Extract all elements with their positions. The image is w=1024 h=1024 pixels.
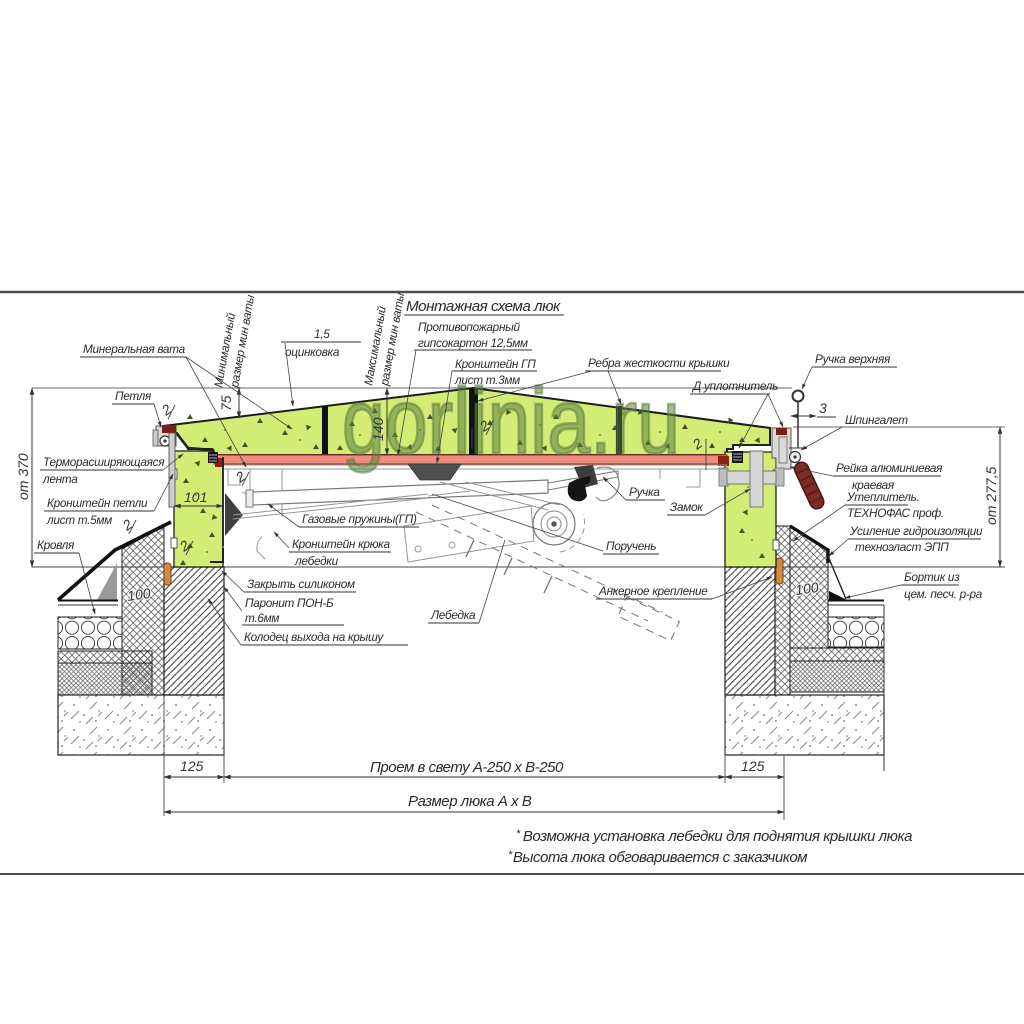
svg-text:цем. песч. р-ра: цем. песч. р-ра bbox=[904, 587, 983, 601]
svg-text:Шпингалет: Шпингалет bbox=[845, 413, 908, 427]
svg-text:100: 100 bbox=[794, 579, 820, 598]
svg-text:Кронштейн крюка: Кронштейн крюка bbox=[292, 537, 390, 551]
svg-text:Монтажная схема люк: Монтажная схема люк bbox=[406, 298, 561, 315]
svg-text:лебедки: лебедки bbox=[294, 554, 339, 568]
svg-text:Паронит ПОН-Б: Паронит ПОН-Б bbox=[245, 596, 334, 610]
svg-text:Ручка верхняя: Ручка верхняя bbox=[815, 352, 891, 366]
svg-text:Ребра жесткости крышки: Ребра жесткости крышки bbox=[588, 356, 730, 370]
svg-text:Закрыть силиконом: Закрыть силиконом bbox=[247, 577, 355, 591]
svg-text:1,5: 1,5 bbox=[314, 327, 330, 341]
svg-text:гипсокартон 12,5мм: гипсокартон 12,5мм bbox=[418, 336, 528, 350]
svg-text:от 370: от 370 bbox=[15, 453, 31, 500]
svg-text:*Возможна установка лебедки дл: *Возможна установка лебедки для поднятия… bbox=[516, 828, 912, 845]
svg-text:125: 125 bbox=[741, 758, 765, 774]
svg-text:Рейка алюминиевая: Рейка алюминиевая bbox=[836, 461, 943, 475]
svg-text:ТЕХНОФАС проф.: ТЕХНОФАС проф. bbox=[847, 506, 944, 520]
svg-text:Д уплотнитель: Д уплотнитель bbox=[691, 379, 778, 393]
svg-text:101: 101 bbox=[184, 489, 207, 505]
svg-text:техноэласт ЭПП: техноэласт ЭПП bbox=[855, 540, 949, 554]
svg-text:лента: лента bbox=[42, 472, 78, 486]
svg-text:Утеплитель.: Утеплитель. bbox=[846, 490, 919, 504]
svg-text:Анкерное крепление: Анкерное крепление bbox=[598, 584, 708, 598]
svg-text:лист т.3мм: лист т.3мм bbox=[454, 373, 520, 387]
svg-text:140: 140 bbox=[370, 417, 386, 441]
svg-text:Минеральная вата: Минеральная вата bbox=[83, 342, 186, 356]
svg-text:Противопожарный: Противопожарный bbox=[418, 320, 521, 334]
svg-text:Размер люка А х В: Размер люка А х В bbox=[408, 793, 532, 810]
svg-text:Усиление гидроизоляции: Усиление гидроизоляции bbox=[849, 524, 983, 538]
svg-text:*Высота люка обговаривается с: *Высота люка обговаривается с заказчиком bbox=[508, 849, 807, 866]
svg-text:125: 125 bbox=[180, 758, 204, 774]
svg-text:оцинковка: оцинковка bbox=[285, 345, 340, 359]
svg-text:Ручка: Ручка bbox=[629, 485, 660, 499]
svg-text:Терморасширяющаяся: Терморасширяющаяся bbox=[43, 455, 165, 469]
svg-text:Кронштейн ГП: Кронштейн ГП bbox=[455, 357, 536, 371]
svg-text:Кронштейн петли: Кронштейн петли bbox=[47, 496, 148, 510]
svg-text:Кровля: Кровля bbox=[37, 538, 75, 552]
svg-text:Поручень: Поручень bbox=[606, 539, 656, 553]
svg-text:Лебедка: Лебедка bbox=[430, 608, 476, 622]
svg-text:Колодец выхода на крышу: Колодец выхода на крышу bbox=[244, 630, 384, 644]
svg-text:от 277,5: от 277,5 bbox=[983, 466, 999, 525]
svg-text:Бортик из: Бортик из bbox=[904, 570, 960, 584]
svg-text:Петля: Петля bbox=[115, 389, 152, 403]
svg-text:Проем в свету А-250 х В-250: Проем в свету А-250 х В-250 bbox=[370, 759, 564, 776]
svg-text:Замок: Замок bbox=[670, 500, 703, 514]
svg-text:Газовые пружины(ГП): Газовые пружины(ГП) bbox=[302, 512, 417, 526]
svg-text:3: 3 bbox=[819, 400, 827, 416]
svg-text:75: 75 bbox=[218, 395, 234, 411]
svg-text:лист т.5мм: лист т.5мм bbox=[46, 513, 112, 527]
svg-text:т.6мм: т.6мм bbox=[245, 611, 279, 625]
svg-text:100: 100 bbox=[126, 585, 152, 604]
